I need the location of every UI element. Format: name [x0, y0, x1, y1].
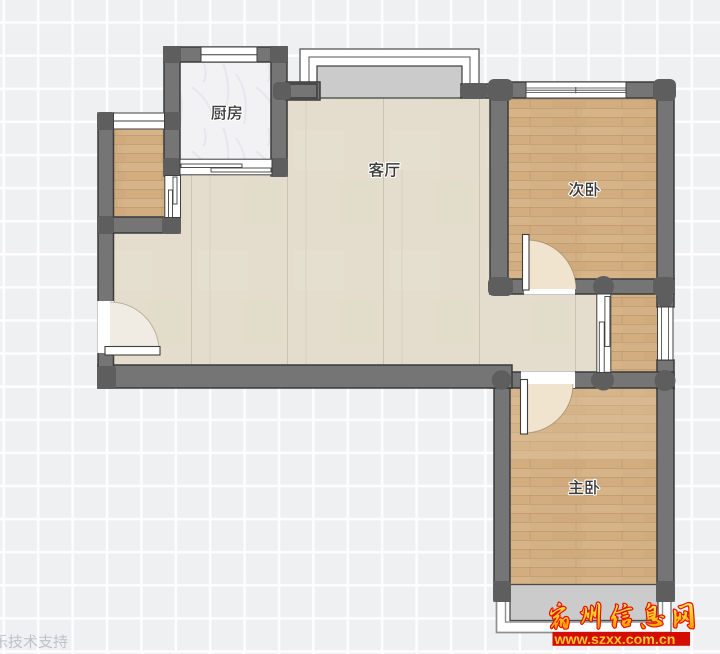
svg-text:www.szxx.com.cn: www.szxx.com.cn: [554, 632, 676, 648]
